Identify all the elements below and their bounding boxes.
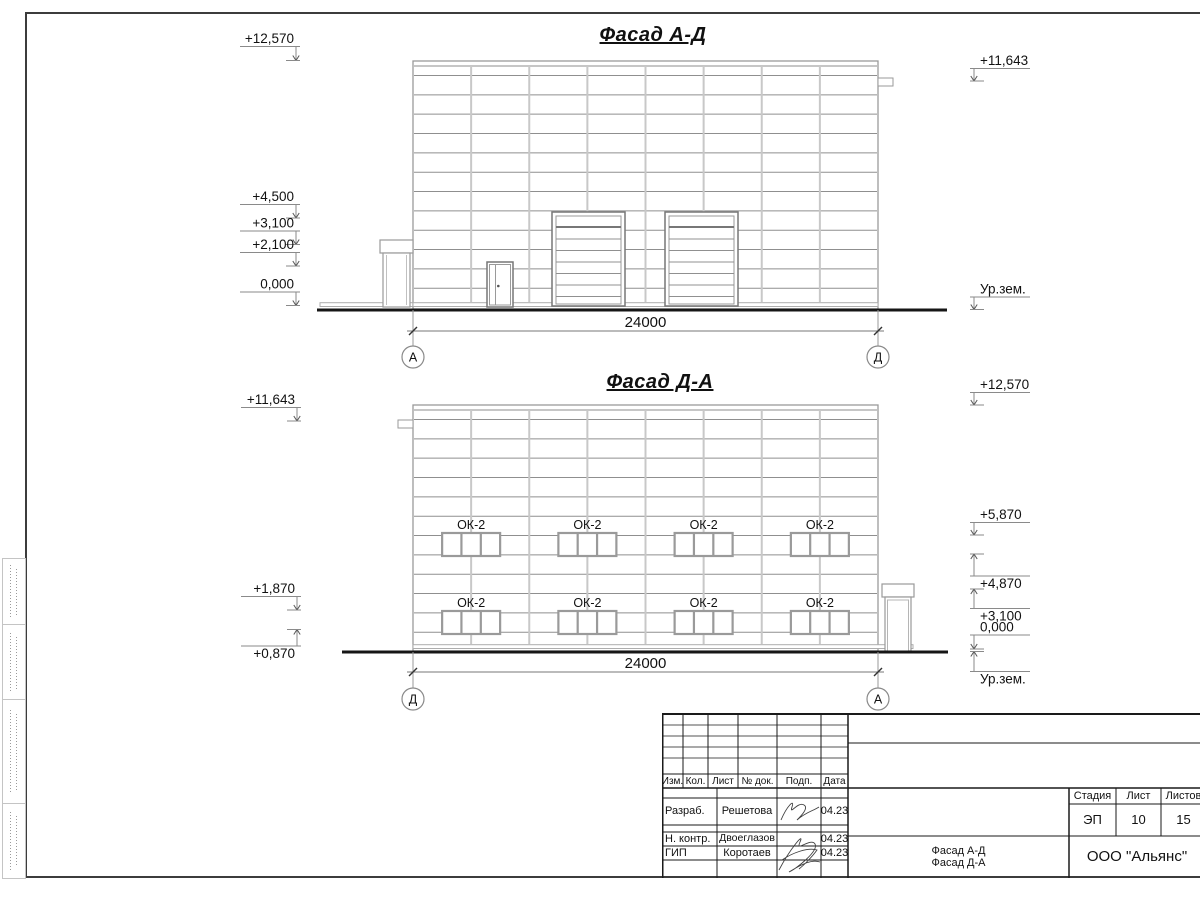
mark-value: +0,870 bbox=[253, 646, 295, 661]
roof-drain-outlet bbox=[878, 78, 893, 86]
mark-value: +4,500 bbox=[252, 189, 294, 204]
facade-da: ОК-2ОК-2ОК-2ОК-2ОК-2ОК-2ОК-2ОК-224000ДА+… bbox=[241, 377, 1030, 710]
elevation-mark: 0,000 bbox=[240, 277, 300, 306]
elevation-mark: 0,000 bbox=[970, 620, 1030, 650]
window-frame bbox=[675, 533, 733, 556]
tb-doc-title-line2: Фасад Д-А bbox=[931, 857, 985, 869]
elevation-mark: Ур.зем. bbox=[970, 282, 1030, 310]
window-mark-label: ОК-2 bbox=[690, 518, 718, 532]
axis-letter: А bbox=[409, 351, 418, 365]
door-handle bbox=[497, 285, 500, 288]
window-frame bbox=[675, 611, 733, 634]
window-mark-label: ОК-2 bbox=[573, 518, 601, 532]
elevation-mark: +4,870 bbox=[970, 554, 1030, 591]
mark-value: Ур.зем. bbox=[980, 282, 1026, 297]
window-mark-label: ОК-2 bbox=[806, 596, 834, 610]
tb-role-razrab: Разраб. bbox=[662, 798, 717, 825]
window-frame bbox=[558, 611, 616, 634]
mark-value: +12,570 bbox=[980, 377, 1029, 392]
tb-role-nkontr: Н. контр. bbox=[662, 832, 717, 846]
dimension-24000-top: 24000АД bbox=[402, 310, 889, 368]
mark-value: +3,100 bbox=[252, 216, 294, 231]
title-block: Изм. Кол. Лист № док. Подп. Дата Разраб.… bbox=[662, 713, 1200, 878]
window-mark-label: ОК-2 bbox=[457, 518, 485, 532]
tb-name-razrab: Решетова bbox=[717, 798, 777, 825]
elevation-mark: +2,100 bbox=[240, 237, 300, 266]
axis-letter: Д bbox=[409, 693, 418, 707]
gate-inner-frame bbox=[556, 216, 621, 304]
window-mark-label: ОК-2 bbox=[573, 596, 601, 610]
dimension-value: 24000 bbox=[625, 314, 667, 331]
facade-ad-title: Фасад А-Д bbox=[523, 24, 783, 47]
tb-name-gip: Коротаев bbox=[717, 846, 777, 860]
window-frame bbox=[442, 611, 500, 634]
tb-doc-title-line1: Фасад А-Д bbox=[931, 845, 985, 857]
mark-value: Ур.зем. bbox=[980, 672, 1026, 687]
elevation-mark: +3,100 bbox=[970, 589, 1030, 624]
tb-company: ООО "Альянс" bbox=[1069, 836, 1200, 878]
gate-inner-frame bbox=[669, 216, 734, 304]
drawing-sheet: 24000АД+12,570+4,500+3,100+2,1000,000+11… bbox=[0, 0, 1200, 900]
mark-value: 0,000 bbox=[260, 277, 294, 292]
tb-col-podp: Подп. bbox=[777, 774, 821, 788]
window-frame bbox=[791, 533, 849, 556]
gate-1 bbox=[552, 212, 625, 306]
mark-value: +1,870 bbox=[253, 581, 295, 596]
elevation-mark: +11,643 bbox=[970, 53, 1030, 81]
elevation-mark: +1,870 bbox=[241, 581, 301, 610]
tb-doc-title: Фасад А-Д Фасад Д-А bbox=[848, 836, 1069, 878]
elevation-mark: +0,870 bbox=[241, 630, 301, 662]
tb-sheet-label: Лист bbox=[1116, 788, 1161, 804]
window-mark-label: ОК-2 bbox=[457, 596, 485, 610]
axis-letter: А bbox=[874, 693, 883, 707]
annex-body bbox=[383, 253, 410, 307]
mark-value: +5,870 bbox=[980, 507, 1022, 522]
signature-gip bbox=[779, 839, 820, 872]
window-frame bbox=[558, 533, 616, 556]
tb-role-gip: ГИП bbox=[662, 846, 717, 860]
tb-col-kol: Кол. bbox=[683, 774, 708, 788]
tb-col-list: Лист bbox=[708, 774, 738, 788]
gate-2 bbox=[665, 212, 738, 306]
roof-drain-outlet bbox=[398, 420, 413, 428]
tb-col-data: Дата bbox=[821, 774, 848, 788]
mark-value: +12,570 bbox=[245, 31, 294, 46]
window-frame bbox=[442, 533, 500, 556]
elevation-mark: Ур.зем. bbox=[970, 652, 1030, 687]
plinth-strip bbox=[413, 645, 913, 649]
tb-sheet-value: 10 bbox=[1116, 804, 1161, 836]
window-frame bbox=[791, 611, 849, 634]
facade-ad: 24000АД+12,570+4,500+3,100+2,1000,000+11… bbox=[240, 31, 1030, 368]
elevation-mark: +12,570 bbox=[240, 31, 300, 61]
tb-stage-value: ЭП bbox=[1069, 804, 1116, 836]
elevation-mark: +4,500 bbox=[240, 189, 300, 218]
tb-date-nkontr: 04.23 bbox=[821, 832, 848, 846]
annex-door bbox=[888, 600, 909, 651]
mark-value: +11,643 bbox=[980, 53, 1028, 68]
door-leaf bbox=[490, 265, 511, 306]
elevation-mark: +12,570 bbox=[970, 377, 1030, 405]
mark-value: +4,870 bbox=[980, 576, 1022, 591]
mark-value: 0,000 bbox=[980, 620, 1014, 635]
entrance-door bbox=[487, 262, 513, 307]
window-mark-label: ОК-2 bbox=[806, 518, 834, 532]
dimension-24000-bottom: 24000ДА bbox=[402, 652, 889, 710]
tb-sheets-value: 15 bbox=[1161, 804, 1200, 836]
annex-roof bbox=[380, 240, 413, 253]
tb-date-gip: 04.23 bbox=[821, 846, 848, 860]
tb-col-ndok: № док. bbox=[738, 774, 777, 788]
elevation-mark: +5,870 bbox=[970, 507, 1030, 535]
plinth-strip bbox=[413, 303, 878, 307]
facade-da-title: Фасад Д-А bbox=[530, 371, 790, 394]
facade-ad-building bbox=[413, 61, 878, 309]
axis-letter: Д bbox=[874, 351, 883, 365]
tb-name-nkontr: Двоеглазов bbox=[717, 832, 777, 846]
window-mark-label: ОК-2 bbox=[690, 596, 718, 610]
tb-stage-label: Стадия bbox=[1069, 788, 1116, 804]
tb-date-razrab: 04.23 bbox=[821, 798, 848, 825]
elevation-mark: +11,643 bbox=[241, 392, 301, 421]
mark-value: +11,643 bbox=[247, 392, 295, 407]
mark-value: +2,100 bbox=[252, 237, 294, 252]
dimension-value: 24000 bbox=[625, 655, 667, 672]
tb-col-izm: Изм. bbox=[662, 774, 683, 788]
tb-sheets-label: Листов bbox=[1161, 788, 1200, 804]
signature-razrab bbox=[781, 803, 819, 820]
annex-roof bbox=[882, 584, 914, 597]
